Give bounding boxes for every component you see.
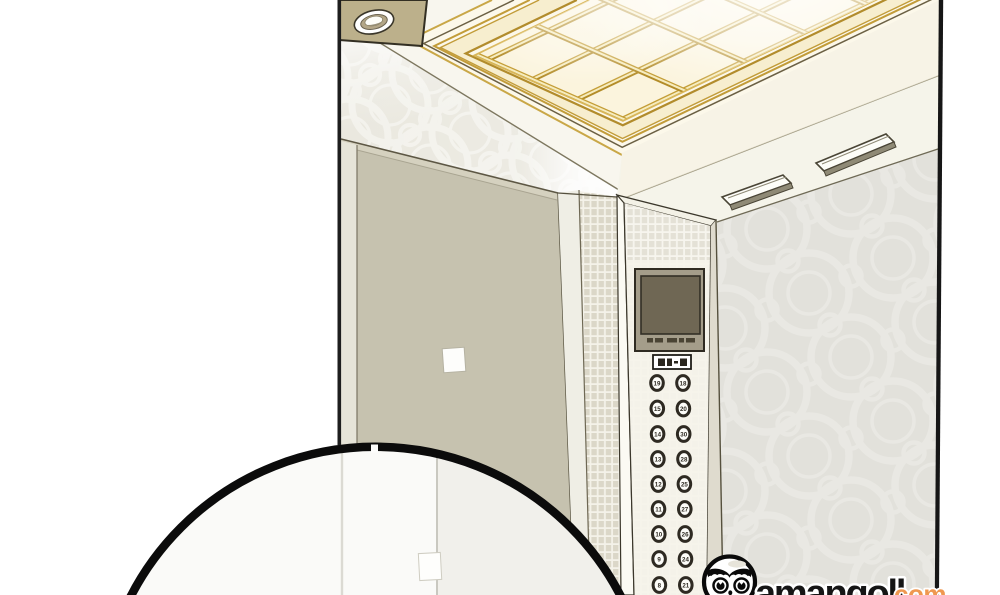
- svg-text:28: 28: [681, 457, 688, 464]
- svg-text:25: 25: [681, 482, 688, 489]
- svg-text:com: com: [894, 579, 946, 595]
- svg-text:10: 10: [655, 532, 662, 539]
- svg-text:18: 18: [680, 381, 687, 388]
- svg-text:14: 14: [654, 432, 661, 439]
- svg-text:amangoll: amangoll: [755, 573, 904, 595]
- svg-text:11: 11: [655, 507, 662, 514]
- svg-text:30: 30: [680, 432, 687, 439]
- svg-text:21: 21: [682, 583, 689, 590]
- svg-text:15: 15: [654, 406, 661, 413]
- svg-text:9: 9: [657, 557, 661, 564]
- svg-text:8: 8: [658, 583, 662, 590]
- svg-text:12: 12: [655, 482, 662, 489]
- svg-text:27: 27: [681, 507, 688, 514]
- svg-text:24: 24: [682, 557, 689, 564]
- svg-text:13: 13: [654, 457, 661, 464]
- svg-text:26: 26: [682, 532, 689, 539]
- svg-text:19: 19: [654, 381, 661, 388]
- svg-text:20: 20: [680, 406, 687, 413]
